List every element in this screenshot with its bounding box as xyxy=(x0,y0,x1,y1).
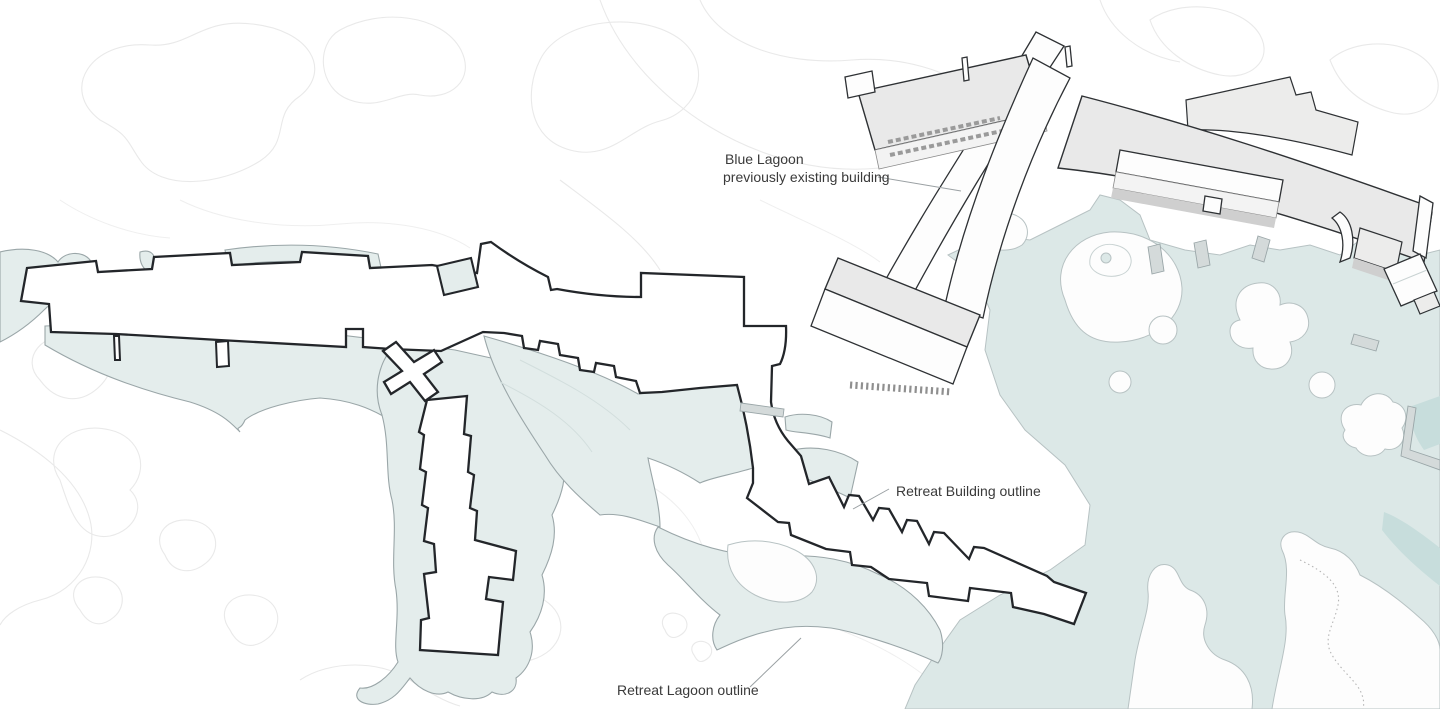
building-e-facade-columns xyxy=(850,385,952,392)
contour-line xyxy=(600,0,880,169)
contour-line xyxy=(1150,7,1264,76)
contour-line xyxy=(1330,44,1438,114)
contour-line xyxy=(180,200,470,248)
contour-line xyxy=(82,23,315,181)
building-a-chimney xyxy=(962,57,969,81)
retreat-wall-stub xyxy=(114,336,120,360)
retreat-building-pool-court xyxy=(437,258,478,295)
retreat-wall-stub xyxy=(216,341,229,367)
contour-line xyxy=(560,180,660,270)
contour-line xyxy=(1100,0,1180,62)
building-d-porch xyxy=(1203,196,1222,214)
site-plan: Blue Lagoon previously existing building… xyxy=(0,0,1440,709)
contour-line xyxy=(662,613,687,637)
contour-line xyxy=(224,595,277,645)
contour-line xyxy=(160,520,216,571)
site-plan-svg: Blue Lagoon previously existing building… xyxy=(0,0,1440,709)
contour-line xyxy=(760,200,880,262)
contour-line xyxy=(531,22,698,152)
island xyxy=(1309,372,1335,398)
island xyxy=(1109,371,1131,393)
label-retreat-lagoon: Retreat Lagoon outline xyxy=(617,682,759,698)
island-pond xyxy=(1101,253,1111,263)
building-a-chimney xyxy=(1065,46,1072,67)
contour-line xyxy=(0,430,92,625)
contour-line xyxy=(692,641,712,661)
contour-line xyxy=(54,428,141,536)
leader-line-retreat-lagoon xyxy=(750,638,801,687)
label-blue-lagoon-line2: previously existing building xyxy=(723,169,890,185)
island xyxy=(1149,316,1177,344)
retreat-lagoon-shape xyxy=(785,414,832,438)
contour-line xyxy=(60,200,170,238)
label-blue-lagoon-line1: Blue Lagoon xyxy=(725,151,804,167)
contour-line xyxy=(323,17,465,103)
contour-line xyxy=(74,577,123,624)
label-retreat-building: Retreat Building outline xyxy=(896,483,1041,499)
